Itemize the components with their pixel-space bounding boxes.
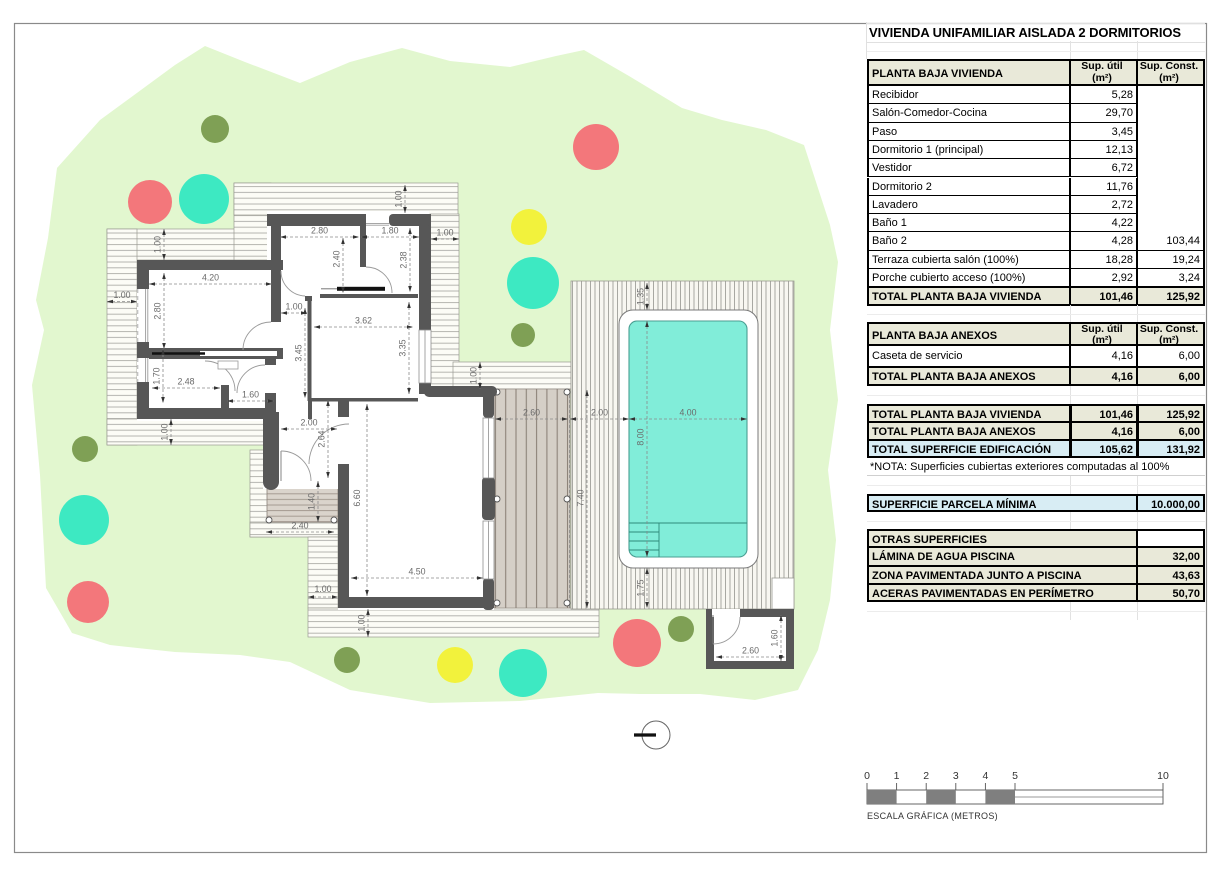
svg-text:7.40: 7.40	[576, 489, 586, 506]
svg-text:2.40: 2.40	[291, 521, 308, 531]
svg-text:1.00: 1.00	[285, 302, 302, 312]
svg-text:1.60: 1.60	[770, 629, 780, 646]
svg-text:1.80: 1.80	[381, 226, 398, 236]
svg-text:6.60: 6.60	[352, 489, 362, 506]
svg-text:2.80: 2.80	[153, 302, 163, 319]
svg-text:4.00: 4.00	[679, 408, 696, 418]
svg-text:4.20: 4.20	[202, 273, 219, 283]
svg-text:2.48: 2.48	[177, 377, 194, 387]
svg-text:1.00: 1.00	[357, 614, 367, 631]
svg-text:2.60: 2.60	[523, 408, 540, 418]
svg-text:4.50: 4.50	[408, 567, 425, 577]
svg-text:1: 1	[894, 770, 900, 782]
svg-text:3.62: 3.62	[355, 316, 372, 326]
svg-text:3.45: 3.45	[294, 344, 304, 361]
svg-text:5: 5	[1012, 770, 1018, 782]
svg-text:1.00: 1.00	[394, 190, 404, 207]
svg-text:2.60: 2.60	[742, 646, 759, 656]
svg-text:2: 2	[923, 770, 929, 782]
svg-text:1.70: 1.70	[152, 367, 162, 384]
svg-text:0: 0	[864, 770, 870, 782]
svg-text:8.00: 8.00	[636, 428, 646, 445]
svg-text:1.00: 1.00	[469, 367, 479, 384]
svg-text:1.00: 1.00	[314, 584, 331, 594]
svg-text:3.35: 3.35	[398, 339, 408, 356]
svg-text:2.00: 2.00	[591, 408, 608, 418]
svg-text:1.00: 1.00	[113, 290, 130, 300]
svg-text:1.75: 1.75	[636, 579, 646, 596]
svg-text:1.00: 1.00	[153, 236, 163, 253]
svg-text:2.38: 2.38	[399, 251, 409, 268]
svg-text:2.00: 2.00	[300, 418, 317, 428]
svg-text:1.60: 1.60	[242, 390, 259, 400]
svg-text:2.80: 2.80	[311, 226, 328, 236]
svg-text:1.40: 1.40	[307, 493, 317, 510]
svg-text:3: 3	[953, 770, 959, 782]
svg-text:ESCALA GRÁFICA (METROS): ESCALA GRÁFICA (METROS)	[867, 811, 998, 821]
svg-text:2.40: 2.40	[332, 250, 342, 267]
svg-text:1.35: 1.35	[636, 288, 646, 305]
svg-text:1.00: 1.00	[160, 423, 170, 440]
svg-text:2.64: 2.64	[317, 430, 327, 447]
svg-text:1.00: 1.00	[436, 228, 453, 238]
svg-text:4: 4	[982, 770, 988, 782]
svg-text:10: 10	[1157, 770, 1169, 782]
